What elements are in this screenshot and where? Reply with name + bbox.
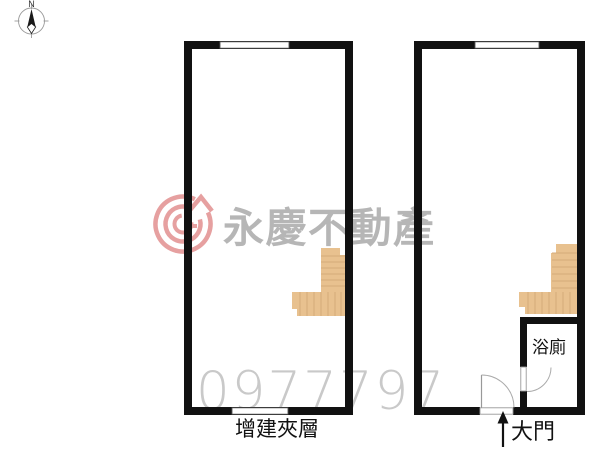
main-door-label: 大門 [511, 419, 555, 444]
watermark-brand-text: 永慶不動產 [223, 205, 436, 251]
wall-bottom-right-segment [513, 407, 585, 415]
floorplan-drawing: 永慶不動產 0977797 N [0, 0, 600, 450]
wall-bottom-left-segment [414, 407, 480, 415]
entrance-arrow-icon [498, 411, 509, 447]
wall-right [577, 41, 585, 415]
main-door-swing-arc [482, 375, 515, 408]
compass-north-label: N [28, 0, 35, 9]
bathroom-label: 浴廁 [532, 337, 566, 357]
compass-icon: N [15, 0, 49, 38]
logo-outer-ring [146, 187, 219, 260]
wall-left [414, 41, 422, 415]
wall-left [184, 41, 192, 415]
window-top [220, 42, 289, 48]
window-top [475, 42, 539, 48]
window-bottom [232, 408, 288, 414]
bathroom-wall-left-upper [520, 324, 527, 367]
logo-inner-ring [162, 203, 205, 246]
wall-right [345, 41, 353, 415]
watermark-logo-icon [146, 187, 219, 260]
left-plan-label: 增建夾層 [235, 417, 319, 441]
floorplan-page: 永慶不動產 0977797 N [0, 0, 600, 450]
bathroom-door-swing-arc [527, 368, 551, 392]
bathroom-wall-left-lower [520, 391, 527, 407]
right-plan-walls [414, 41, 585, 415]
bathroom-door-leaf [521, 367, 526, 391]
main-door-threshold [480, 408, 513, 414]
bathroom-wall-top [520, 317, 577, 324]
